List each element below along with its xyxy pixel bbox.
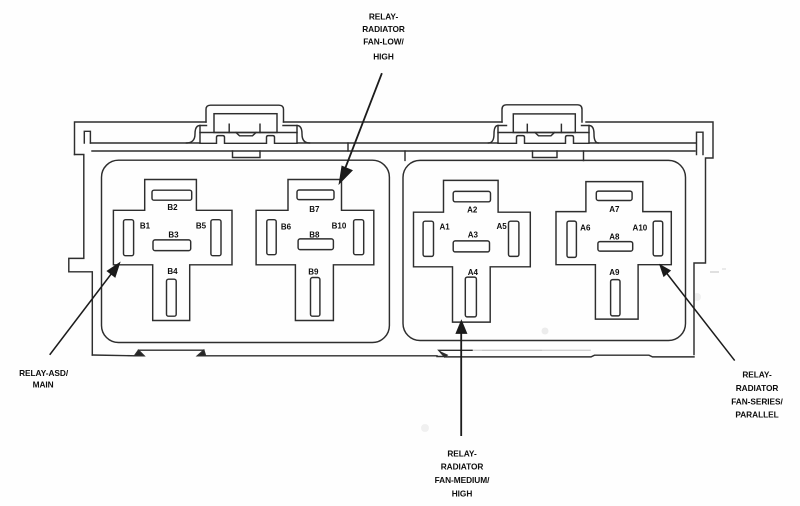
svg-text:A3: A3 [468, 230, 479, 239]
svg-text:RELAY-: RELAY- [447, 449, 477, 459]
svg-text:B10: B10 [332, 222, 347, 231]
svg-text:B6: B6 [281, 223, 292, 232]
svg-text:B1: B1 [140, 222, 151, 231]
svg-text:A4: A4 [468, 268, 479, 277]
svg-text:HIGH: HIGH [452, 489, 473, 499]
svg-text:RELAY-: RELAY- [369, 12, 399, 22]
svg-text:A8: A8 [609, 232, 620, 241]
svg-text:B3: B3 [168, 231, 179, 240]
svg-text:RADIATOR: RADIATOR [441, 462, 484, 472]
svg-text:FAN-MEDIUM/: FAN-MEDIUM/ [435, 475, 491, 485]
svg-text:B4: B4 [167, 267, 178, 276]
svg-text:A7: A7 [609, 205, 620, 214]
svg-text:HIGH: HIGH [373, 52, 394, 62]
svg-text:A9: A9 [609, 268, 620, 277]
svg-text:B5: B5 [196, 222, 207, 231]
svg-text:A6: A6 [580, 223, 591, 232]
svg-text:B2: B2 [167, 203, 178, 212]
svg-text:B7: B7 [309, 205, 320, 214]
svg-text:B9: B9 [308, 267, 319, 276]
svg-text:A1: A1 [439, 223, 450, 232]
svg-text:MAIN: MAIN [33, 380, 54, 390]
svg-text:A10: A10 [633, 223, 648, 232]
svg-text:A5: A5 [496, 222, 507, 231]
svg-text:FAN-SERIES/: FAN-SERIES/ [731, 397, 783, 407]
svg-text:FAN-LOW/: FAN-LOW/ [363, 37, 404, 47]
svg-text:A2: A2 [467, 206, 478, 215]
svg-text:RELAY-: RELAY- [742, 370, 772, 380]
svg-text:RADIATOR: RADIATOR [362, 24, 405, 34]
svg-text:B8: B8 [309, 230, 320, 239]
svg-text:RADIATOR: RADIATOR [736, 383, 779, 393]
svg-text:PARALLEL: PARALLEL [735, 410, 778, 420]
svg-text:RELAY-ASD/: RELAY-ASD/ [19, 368, 69, 378]
